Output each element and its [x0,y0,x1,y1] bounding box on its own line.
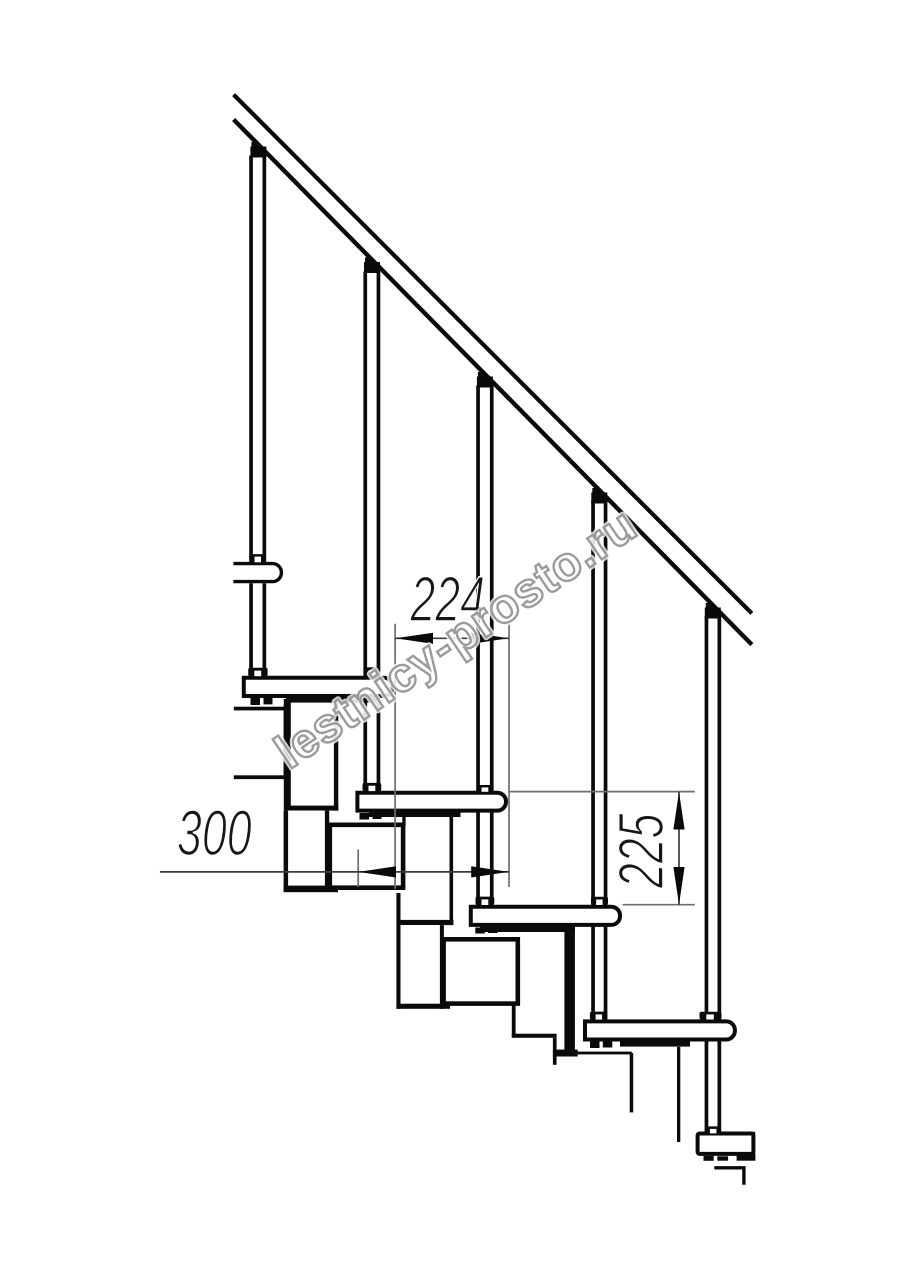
svg-text:300: 300 [177,797,252,869]
svg-text:225: 225 [605,813,677,889]
